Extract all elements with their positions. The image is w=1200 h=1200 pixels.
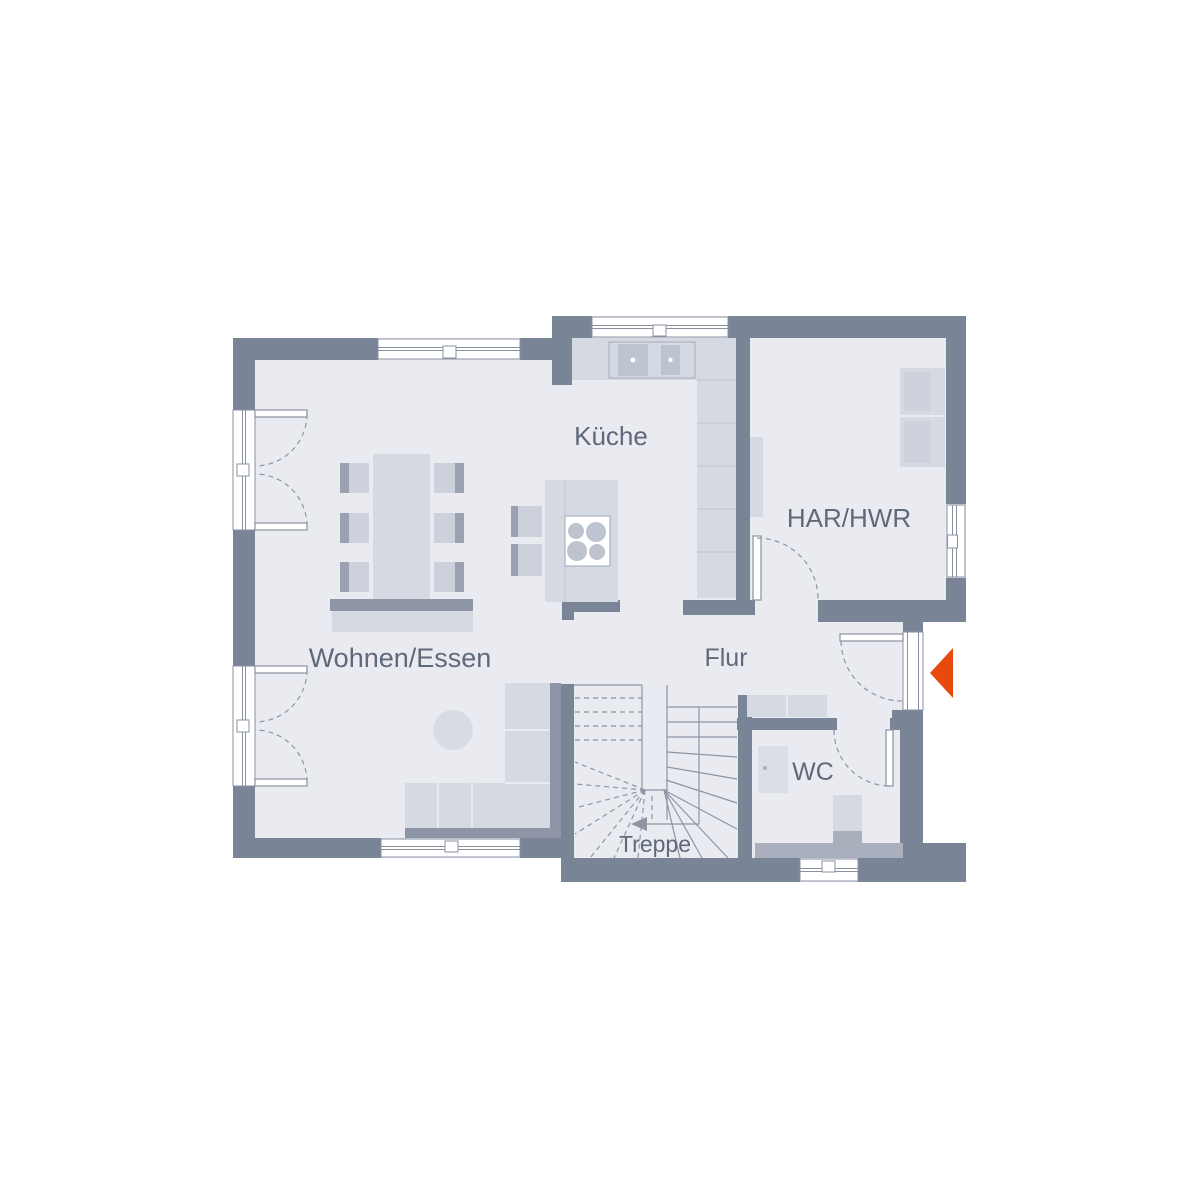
har-appliances bbox=[900, 368, 945, 467]
room-label-wohnen-essen: Wohnen/Essen bbox=[309, 643, 492, 673]
room-label-flur: Flur bbox=[704, 644, 747, 672]
kitchen-tall-cabinets bbox=[697, 338, 736, 598]
room-label-wc: WC bbox=[792, 758, 834, 786]
window-top-left bbox=[378, 339, 520, 359]
entry-arrow bbox=[930, 648, 953, 698]
room-label-har-hwr: HAR/HWR bbox=[787, 503, 911, 533]
window-har-right bbox=[947, 505, 965, 577]
wc-counter bbox=[755, 843, 903, 858]
kitchen-island bbox=[545, 480, 618, 602]
window-living-bottom bbox=[381, 839, 520, 857]
floor-plan-page: Küche HAR/HWR Wohnen/Essen Flur WC Trepp… bbox=[0, 0, 1200, 1200]
har-shelf bbox=[750, 437, 763, 517]
dining-set bbox=[340, 454, 464, 600]
window-wc-bottom bbox=[800, 859, 858, 881]
wc-sink bbox=[758, 746, 788, 793]
wc-toilet bbox=[833, 795, 862, 843]
room-label-kueche: Küche bbox=[574, 421, 648, 451]
sideboard bbox=[330, 599, 473, 632]
floor-plan: Küche HAR/HWR Wohnen/Essen Flur WC Trepp… bbox=[0, 0, 1200, 1200]
room-label-treppe: Treppe bbox=[619, 831, 691, 857]
rug bbox=[433, 710, 473, 750]
window-kitchen bbox=[592, 317, 728, 337]
